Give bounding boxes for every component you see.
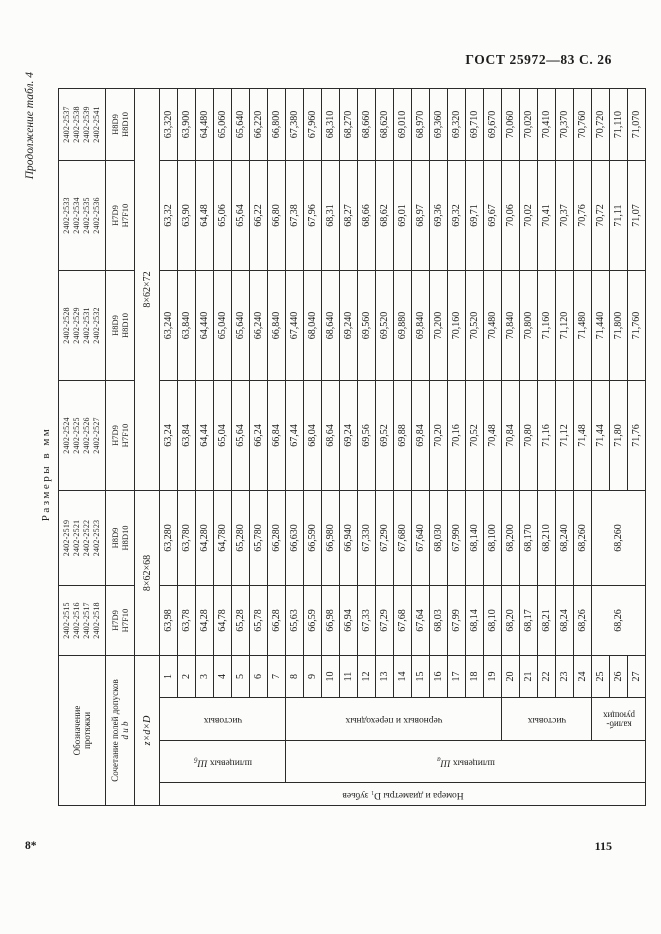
diameter-value: 64,440 — [196, 271, 214, 381]
diameter-value: 68,210 — [538, 491, 556, 586]
diameter-value: 71,800 — [610, 271, 628, 381]
tolerance-stub-header: Сочетание полей допусковd и b — [106, 656, 135, 806]
signature-mark: 8* — [25, 840, 37, 852]
tooth-row-number: 17 — [448, 656, 466, 698]
diameter-value: 71,07 — [628, 161, 646, 271]
tooth-row-number: 18 — [466, 656, 484, 698]
diameter-value: 66,59 — [304, 586, 322, 656]
diameter-value: 70,840 — [502, 271, 520, 381]
diameter-value: 70,480 — [484, 271, 502, 381]
diameter-value: 68,14 — [466, 586, 484, 656]
tooth-row-number: 23 — [556, 656, 574, 698]
diameter-value: 69,88 — [394, 381, 412, 491]
diameter-value: 71,160 — [538, 271, 556, 381]
diameter-value: 66,28 — [268, 586, 286, 656]
tolerance-combo-col1: H7D9H7F10 — [106, 586, 135, 656]
diameter-value: 66,94 — [340, 586, 358, 656]
tooth-row-number: 24 — [574, 656, 592, 698]
diameter-value: 68,66 — [358, 161, 376, 271]
tolerance-combo-col6: H8D9H8D10 — [106, 89, 135, 161]
diameter-value: 70,720 — [592, 89, 610, 161]
diameter-value: 69,560 — [358, 271, 376, 381]
diameter-value: 71,760 — [628, 271, 646, 381]
diameter-value: 67,44 — [286, 381, 304, 491]
diameter-value: 71,070 — [628, 89, 646, 161]
diameter-value: 63,24 — [160, 381, 178, 491]
diameter-value: 69,56 — [358, 381, 376, 491]
tooth-row-number: 27 — [628, 656, 646, 698]
diameter-value: 66,800 — [268, 89, 286, 161]
diameter-value: 64,480 — [196, 89, 214, 161]
diameter-value: 66,98 — [322, 586, 340, 656]
tooth-row-number: 6 — [250, 656, 268, 698]
diameter-value: 66,220 — [250, 89, 268, 161]
tooth-row-number: 3 — [196, 656, 214, 698]
diameter-value: 65,280 — [232, 491, 250, 586]
diameter-value: 63,32 — [160, 161, 178, 271]
diameter-value: 69,010 — [394, 89, 412, 161]
diameter-value: 69,880 — [394, 271, 412, 381]
diameter-value: 68,20 — [502, 586, 520, 656]
diameter-value: 70,760 — [574, 89, 592, 161]
diameter-value: 69,360 — [430, 89, 448, 161]
diameter-value: 65,640 — [232, 271, 250, 381]
broach-designations-col1: 2402-25152402-25162402-25172402-2518 — [59, 586, 106, 656]
diameter-value: 71,76 — [628, 381, 646, 491]
diameter-value: 70,80 — [520, 381, 538, 491]
diameter-value: 71,120 — [556, 271, 574, 381]
diameter-value: 68,970 — [412, 89, 430, 161]
diameter-value: 69,84 — [412, 381, 430, 491]
tooth-row-number: 20 — [502, 656, 520, 698]
tooth-row-number: 21 — [520, 656, 538, 698]
diameter-value: 68,10 — [484, 586, 502, 656]
diameter-value: 66,940 — [340, 491, 358, 586]
tooth-group-label-4: калиб-рующих — [592, 698, 646, 741]
diameter-value: 66,840 — [268, 271, 286, 381]
diameter-value: 67,29 — [376, 586, 394, 656]
diameter-value: 65,060 — [214, 89, 232, 161]
spline-size-2: 8×62×72 — [135, 89, 160, 491]
diameter-value: 70,370 — [556, 89, 574, 161]
diameter-value: 68,17 — [520, 586, 538, 656]
diameter-value: 66,24 — [250, 381, 268, 491]
tooth-row-number: 9 — [304, 656, 322, 698]
diameter-value: 67,440 — [286, 271, 304, 381]
diameter-value: 65,63 — [286, 586, 304, 656]
diameter-value: 63,280 — [160, 491, 178, 586]
diameter-value: 70,20 — [430, 381, 448, 491]
diameter-value: 65,06 — [214, 161, 232, 271]
dimensions-table-host: Обозначениепротяжки2402-25152402-2516240… — [58, 88, 646, 806]
diameter-value: 70,84 — [502, 381, 520, 491]
tooth-group-label-3: чистовых — [502, 698, 592, 741]
diameter-value: 71,12 — [556, 381, 574, 491]
diameter-value: 67,290 — [376, 491, 394, 586]
diameter-value: 63,98 — [160, 586, 178, 656]
rotated-table-area: Продолжение табл. 4 Размеры в мм Обознач… — [0, 0, 661, 934]
diameter-value: 68,040 — [304, 271, 322, 381]
tooth-row-number: 22 — [538, 656, 556, 698]
table-row: чистовых2068,2068,20070,8470,84070,0670,… — [502, 89, 520, 806]
diameter-value: 65,64 — [232, 381, 250, 491]
diameter-value: 70,41 — [538, 161, 556, 271]
diameter-value: 67,380 — [286, 89, 304, 161]
table-continuation-note: Продолжение табл. 4 — [24, 72, 36, 179]
diameter-value: 69,670 — [484, 89, 502, 161]
diameter-value: 69,520 — [376, 271, 394, 381]
tooth-row-number: 4 — [214, 656, 232, 698]
diameter-value: 70,76 — [574, 161, 592, 271]
diameter-value: 66,280 — [268, 491, 286, 586]
diameter-value: 63,840 — [178, 271, 196, 381]
diameter-value: 63,240 — [160, 271, 178, 381]
broach-designations-col5: 2402-25332402-25342402-25352402-2536 — [59, 161, 106, 271]
diameter-value: 67,960 — [304, 89, 322, 161]
tooth-row-number: 5 — [232, 656, 250, 698]
diameter-value: 66,84 — [268, 381, 286, 491]
diameter-value: 68,97 — [412, 161, 430, 271]
tooth-row-number: 26 — [610, 656, 628, 698]
diameter-value: 69,320 — [448, 89, 466, 161]
diameter-value: 68,21 — [538, 586, 556, 656]
table-row: калиб-рующих2568,2668,26071,4471,44070,7… — [592, 89, 610, 806]
diameter-value: 66,980 — [322, 491, 340, 586]
diameter-value: 71,110 — [610, 89, 628, 161]
diameter-value: 66,240 — [250, 271, 268, 381]
tolerance-combo-col3: H7D9H7F10 — [106, 381, 135, 491]
diameter-value: 64,280 — [196, 491, 214, 586]
diameter-value: 63,320 — [160, 89, 178, 161]
diameter-value: 68,170 — [520, 491, 538, 586]
diameter-value: 66,630 — [286, 491, 304, 586]
diameter-value: 65,640 — [232, 89, 250, 161]
diameter-value: 65,64 — [232, 161, 250, 271]
diameter-value: 70,060 — [502, 89, 520, 161]
tooth-row-number: 16 — [430, 656, 448, 698]
diameter-value: 63,84 — [178, 381, 196, 491]
tooth-row-number: 14 — [394, 656, 412, 698]
diameter-value: 71,80 — [610, 381, 628, 491]
diameter-value: 70,37 — [556, 161, 574, 271]
broach-designations-col2: 2402-25192402-25212402-25222402-2523 — [59, 491, 106, 586]
diameter-value: 64,78 — [214, 586, 232, 656]
diameter-value: 64,44 — [196, 381, 214, 491]
diameter-value: 70,200 — [430, 271, 448, 381]
diameter-value: 67,96 — [304, 161, 322, 271]
tooth-row-number: 12 — [358, 656, 376, 698]
diameter-value: 70,800 — [520, 271, 538, 381]
units-note: Размеры в мм — [40, 427, 52, 522]
diameter-value: 68,240 — [556, 491, 574, 586]
diameter-value: 68,31 — [322, 161, 340, 271]
diameter-value: 69,840 — [412, 271, 430, 381]
tolerance-combo-col2: H8D9H8D10 — [106, 491, 135, 586]
diameter-value: 64,48 — [196, 161, 214, 271]
diameter-value: 70,52 — [466, 381, 484, 491]
diameter-value: 70,160 — [448, 271, 466, 381]
diameter-value: 68,100 — [484, 491, 502, 586]
tooth-row-number: 15 — [412, 656, 430, 698]
diameter-value: 71,16 — [538, 381, 556, 491]
diameter-value: 66,22 — [250, 161, 268, 271]
diameter-value: 67,330 — [358, 491, 376, 586]
tooth-row-number: 10 — [322, 656, 340, 698]
diameter-value: 68,310 — [322, 89, 340, 161]
broach-designations-col6: 2402-25372402-25382402-25392402-2541 — [59, 89, 106, 161]
diameter-value: 70,16 — [448, 381, 466, 491]
diameter-value: 68,260 — [574, 491, 592, 586]
tooth-row-number: 13 — [376, 656, 394, 698]
diameter-value: 69,32 — [448, 161, 466, 271]
diameter-value: 67,990 — [448, 491, 466, 586]
diameter-value: 65,04 — [214, 381, 232, 491]
diameter-value: 68,62 — [376, 161, 394, 271]
diameter-value: 63,78 — [178, 586, 196, 656]
diameter-value: 68,620 — [376, 89, 394, 161]
tooth-row-number: 19 — [484, 656, 502, 698]
diameter-value: 64,780 — [214, 491, 232, 586]
diameter-value: 67,64 — [412, 586, 430, 656]
tooth-row-number: 1 — [160, 656, 178, 698]
page-number: 115 — [595, 839, 612, 854]
diameter-value: 70,06 — [502, 161, 520, 271]
spline-section-label-2: шлицевых Ша — [286, 741, 646, 783]
diameter-value: 69,01 — [394, 161, 412, 271]
diameter-value: 69,24 — [340, 381, 358, 491]
diameter-value: 69,240 — [340, 271, 358, 381]
diameter-value: 70,020 — [520, 89, 538, 161]
tooth-row-number: 8 — [286, 656, 304, 698]
diameter-value: 68,640 — [322, 271, 340, 381]
diameter-value: 66,80 — [268, 161, 286, 271]
diameter-value: 68,660 — [358, 89, 376, 161]
tolerance-combo-col5: H7D9H7F10 — [106, 161, 135, 271]
diameter-value: 71,48 — [574, 381, 592, 491]
tolerance-combo-col4: H8D9H8D10 — [106, 271, 135, 381]
spline-section-label-1: шлицевых Шб — [160, 741, 286, 783]
diameter-value: 67,33 — [358, 586, 376, 656]
diameter-value: 68,270 — [340, 89, 358, 161]
diameter-value: 68,140 — [466, 491, 484, 586]
diameter-value: 63,780 — [178, 491, 196, 586]
diameter-value: 70,48 — [484, 381, 502, 491]
diameter-value: 65,040 — [214, 271, 232, 381]
diameter-value: 68,030 — [430, 491, 448, 586]
diameter-value: 69,710 — [466, 89, 484, 161]
diameter-value: 70,410 — [538, 89, 556, 161]
diameter-value: 69,67 — [484, 161, 502, 271]
diameter-value: 68,24 — [556, 586, 574, 656]
diameter-value: 68,200 — [502, 491, 520, 586]
spline-size-1: 8×62×68 — [135, 491, 160, 656]
diameter-value: 67,38 — [286, 161, 304, 271]
tooth-group-label-1: чистовых — [160, 698, 286, 741]
diameter-value: 71,11 — [610, 161, 628, 271]
broach-designations-col4: 2402-25282402-25292402-25312402-2532 — [59, 271, 106, 381]
diameter-value: 67,99 — [448, 586, 466, 656]
document-page: ГОСТ 25972—83 С. 26 Продолжение табл. 4 … — [0, 0, 661, 934]
dimensions-table: Обозначениепротяжки2402-25152402-2516240… — [58, 88, 646, 806]
tooth-row-number: 2 — [178, 656, 196, 698]
diameter-value: 69,52 — [376, 381, 394, 491]
diameter-value: 69,36 — [430, 161, 448, 271]
diameter-value: 70,520 — [466, 271, 484, 381]
table-side-label: Номера и диаметры D₁ зубьев — [160, 783, 646, 806]
diameter-value: 70,02 — [520, 161, 538, 271]
diameter-value: 71,480 — [574, 271, 592, 381]
diameter-value: 68,26 — [574, 586, 592, 656]
diameter-value: 70,72 — [592, 161, 610, 271]
diameter-value: 67,68 — [394, 586, 412, 656]
designation-stub-header: Обозначениепротяжки — [59, 656, 106, 806]
tooth-row-number: 7 — [268, 656, 286, 698]
diameter-value: 63,90 — [178, 161, 196, 271]
merged-diameter-value: 68,26 — [592, 586, 646, 656]
broach-designations-col3: 2402-25242402-25252402-25262402-2527 — [59, 381, 106, 491]
diameter-value: 71,440 — [592, 271, 610, 381]
size-stub-header: z×d×D — [135, 656, 160, 806]
diameter-value: 67,640 — [412, 491, 430, 586]
diameter-value: 65,78 — [250, 586, 268, 656]
diameter-value: 66,590 — [304, 491, 322, 586]
diameter-value: 69,71 — [466, 161, 484, 271]
diameter-value: 68,04 — [304, 381, 322, 491]
table-row: шлицевых Шачерновых и переходных865,6366… — [286, 89, 304, 806]
diameter-value: 68,03 — [430, 586, 448, 656]
diameter-value: 68,64 — [322, 381, 340, 491]
diameter-value: 65,28 — [232, 586, 250, 656]
merged-diameter-value: 68,260 — [592, 491, 646, 586]
diameter-value: 64,28 — [196, 586, 214, 656]
diameter-value: 63,900 — [178, 89, 196, 161]
diameter-value: 65,780 — [250, 491, 268, 586]
diameter-value: 67,680 — [394, 491, 412, 586]
tooth-row-number: 11 — [340, 656, 358, 698]
diameter-value: 71,44 — [592, 381, 610, 491]
tooth-group-label-2: черновых и переходных — [286, 698, 502, 741]
tooth-row-number: 25 — [592, 656, 610, 698]
table-row: Номера и диаметры D₁ зубьевшлицевых Шбчи… — [160, 89, 178, 806]
diameter-value: 68,27 — [340, 161, 358, 271]
